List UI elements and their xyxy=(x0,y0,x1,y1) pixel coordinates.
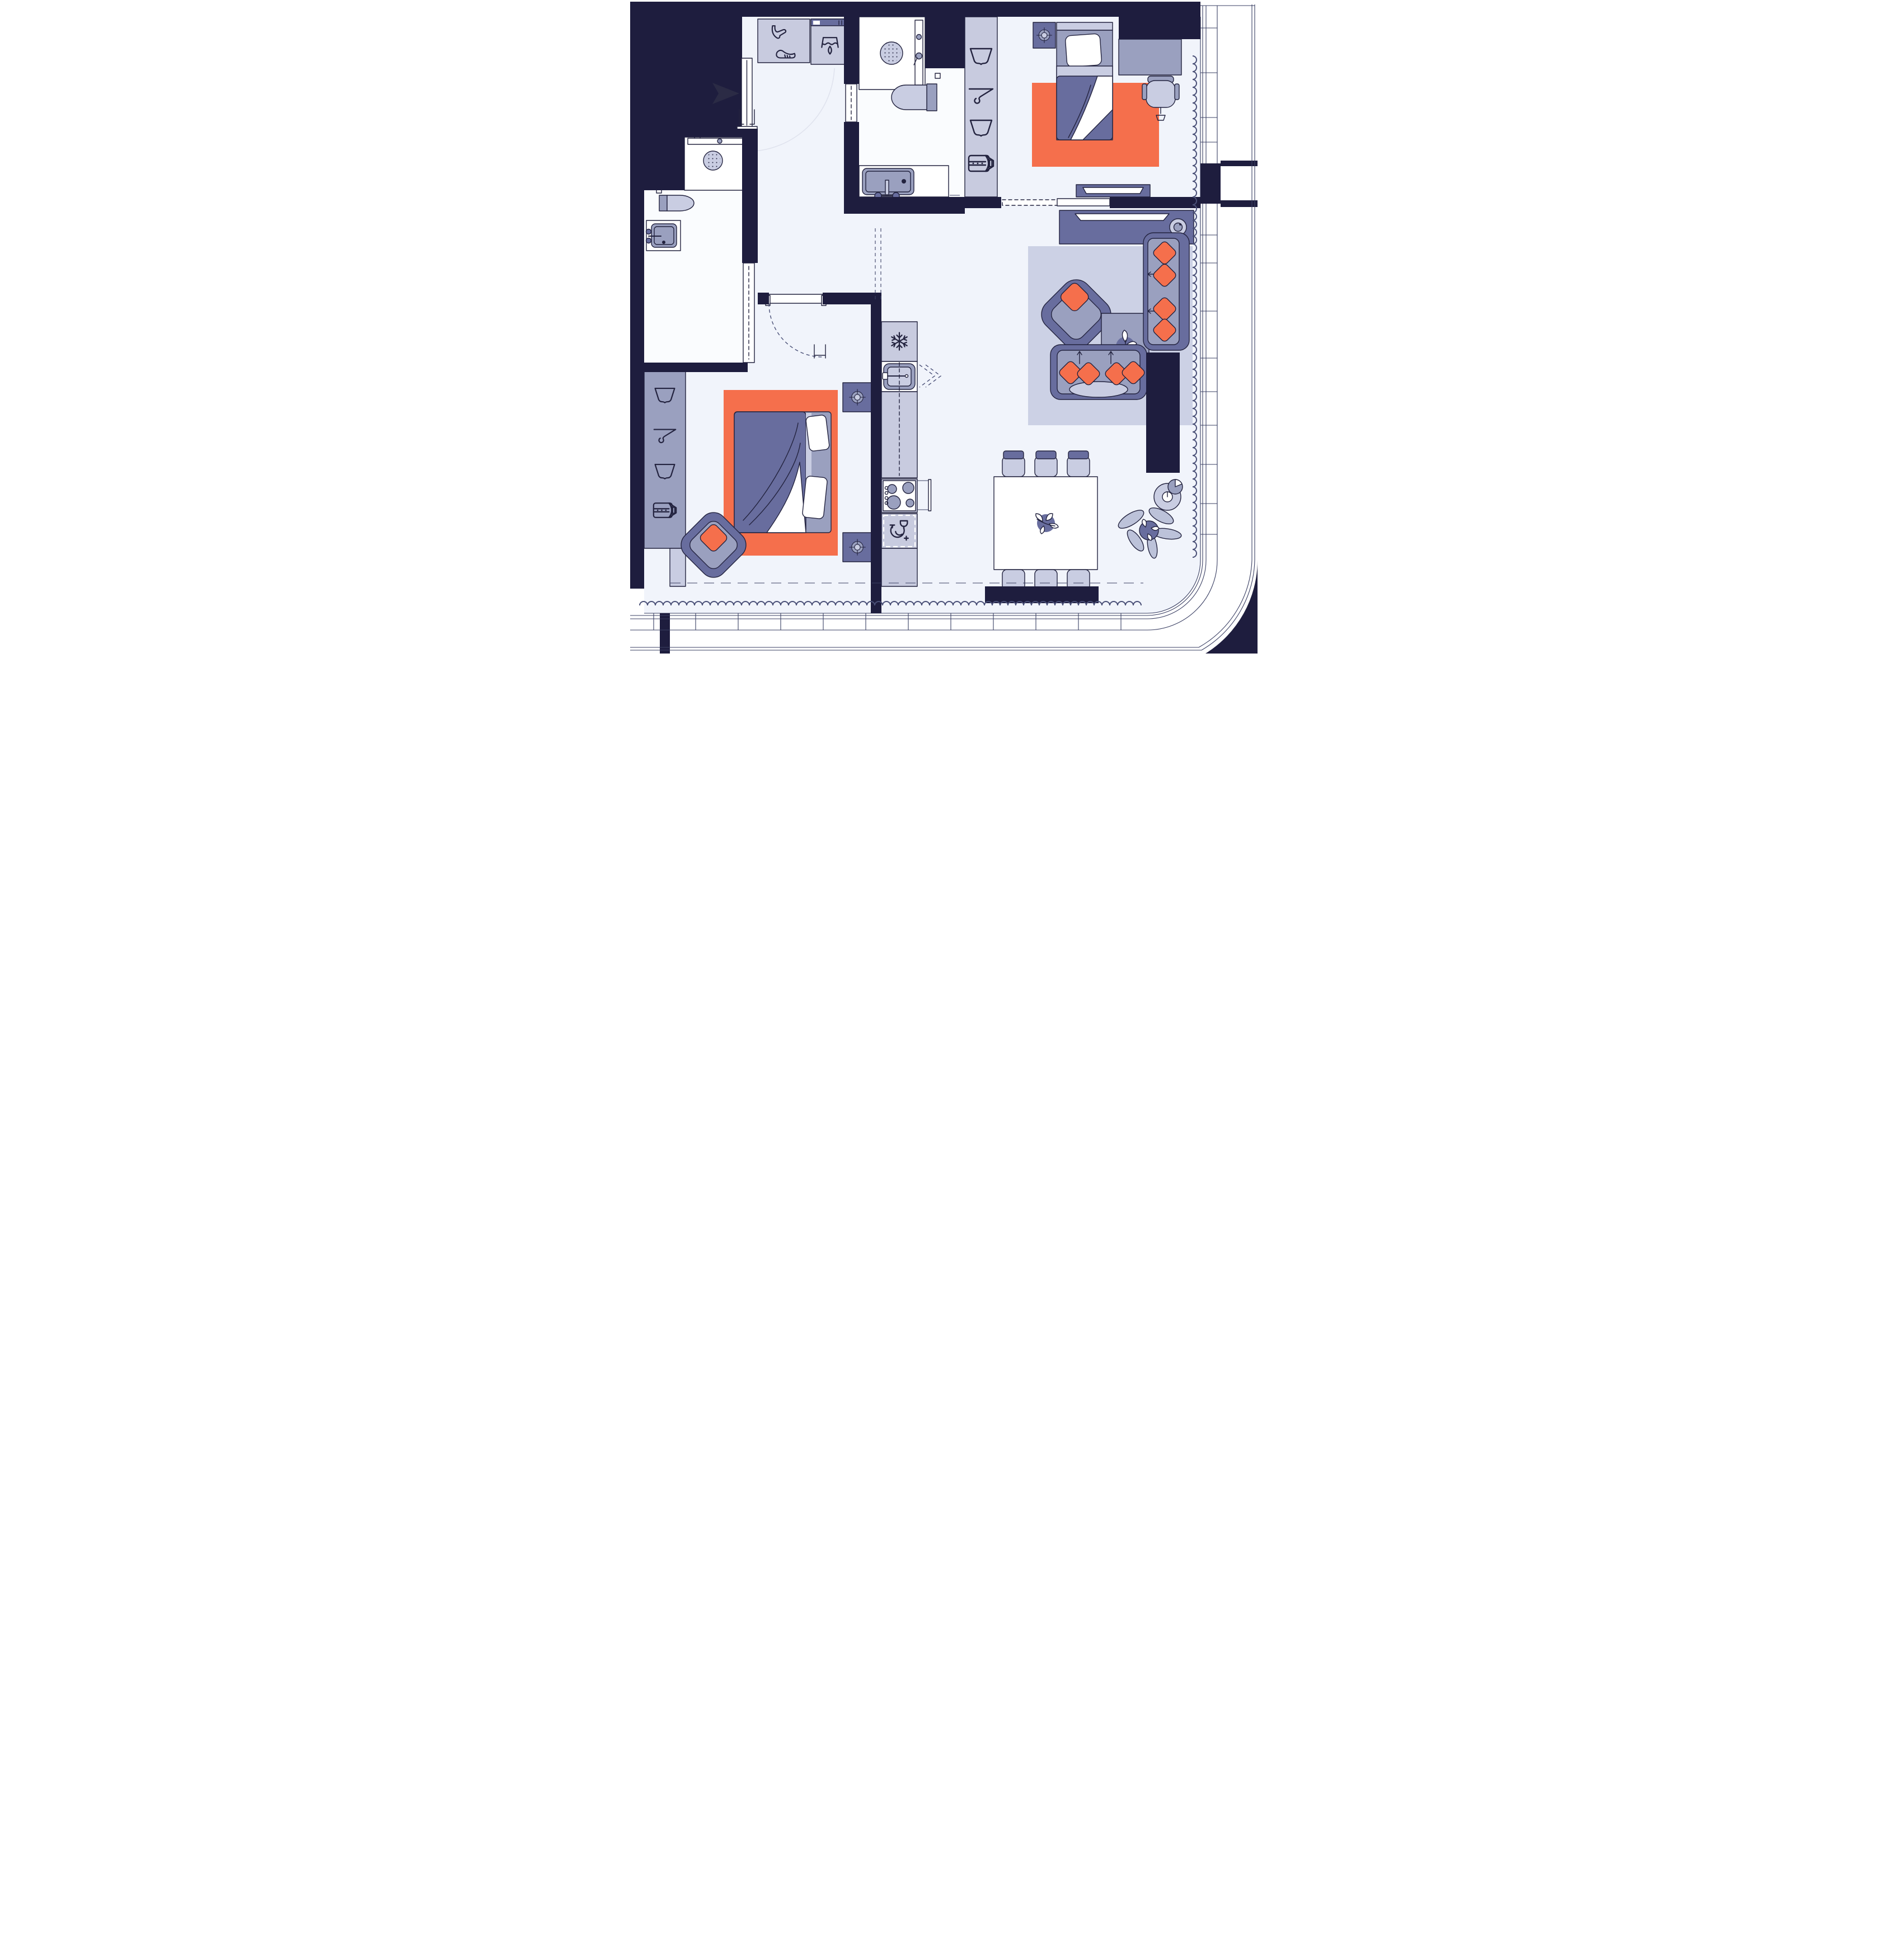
shower-fixture-bar xyxy=(688,138,745,144)
wall-divider-left xyxy=(965,197,1001,208)
bed-pillow xyxy=(1065,34,1102,67)
sofa-right xyxy=(1143,233,1189,350)
wall-above-shower xyxy=(684,129,748,137)
entry-mass xyxy=(630,2,742,129)
pillar-right xyxy=(1200,163,1221,204)
wall-hung-toilet xyxy=(667,195,694,211)
wardrobe-pad xyxy=(670,548,686,586)
wall-hung-toilet xyxy=(892,85,927,110)
dining-chair xyxy=(1002,451,1025,477)
wall-ensuite-shaft xyxy=(644,129,684,190)
corner-dark-quarter xyxy=(1205,560,1258,654)
sink-faucet-base xyxy=(883,373,888,379)
shower-head-dots xyxy=(883,44,900,62)
shower-arm-head xyxy=(717,139,722,143)
wall-master-north-a xyxy=(758,293,769,304)
bed-pillow xyxy=(802,476,828,519)
bedroom-door-leaf xyxy=(769,294,823,303)
wall-master-north-b xyxy=(823,293,881,304)
burner xyxy=(887,496,900,509)
bedroom2-wardrobe xyxy=(965,17,997,197)
desk xyxy=(1119,39,1181,75)
shoe-cabinet xyxy=(758,19,810,63)
faucet-knob xyxy=(646,229,651,234)
burner xyxy=(906,499,914,507)
faucet-knob xyxy=(646,238,651,243)
oven-handle xyxy=(928,480,931,511)
window-wall-bottom xyxy=(630,613,1202,650)
wall-divider-right xyxy=(1110,197,1200,208)
chair-arm xyxy=(1142,84,1147,100)
wall-ensuite-south xyxy=(644,363,748,372)
dishwasher xyxy=(881,514,917,548)
window-wall-right xyxy=(1200,4,1255,560)
pocket-door-leaf xyxy=(1057,199,1110,206)
toilet-tank xyxy=(927,84,937,111)
wardrobe-strip xyxy=(644,371,686,548)
tv xyxy=(1075,214,1169,220)
basin-drain xyxy=(662,241,665,244)
bed-headboard xyxy=(1057,22,1113,30)
wall-bath-south xyxy=(844,197,965,214)
loveseat xyxy=(1050,345,1147,399)
wardrobe-strip xyxy=(965,17,997,197)
dresser-tv xyxy=(1083,187,1143,194)
wall-above-desk xyxy=(1119,17,1200,39)
dining-chair xyxy=(1035,451,1057,477)
dining-chair xyxy=(1067,451,1090,477)
wall-left xyxy=(630,129,644,589)
burner xyxy=(888,485,897,493)
wall-kitchen-stub xyxy=(871,586,881,613)
hall-cabinets xyxy=(758,19,849,64)
faucet-stem xyxy=(885,180,889,195)
paper-holder xyxy=(935,73,940,78)
kitchen-counter xyxy=(881,392,917,478)
sink-faucet-tip xyxy=(906,375,908,378)
shower-knob xyxy=(917,35,922,40)
pocket-door-track xyxy=(1002,200,1058,205)
console-lamp-dot xyxy=(1179,223,1181,225)
wall-shower-chunk xyxy=(925,17,965,68)
wall-bath-west-upper xyxy=(844,17,859,84)
chair-arm xyxy=(1175,84,1179,100)
wall-kitchen xyxy=(871,304,881,586)
shower-head-dots xyxy=(706,153,721,168)
wall-top xyxy=(742,2,1200,17)
wall-balcony-bar xyxy=(985,586,1099,603)
bed-pillow xyxy=(805,415,829,452)
chair-seat xyxy=(1146,81,1175,107)
toilet-tank xyxy=(659,195,667,211)
dining-area xyxy=(994,451,1097,595)
laundry-display xyxy=(813,21,820,25)
floor-plan-canvas xyxy=(628,0,1258,654)
structural-column xyxy=(1146,352,1180,473)
burner xyxy=(903,482,914,493)
floor-plan-page xyxy=(628,0,1258,654)
kitchen-cabinet-end xyxy=(881,548,917,586)
wall-ensuite-hall xyxy=(742,129,758,263)
basin-drain xyxy=(902,179,906,184)
